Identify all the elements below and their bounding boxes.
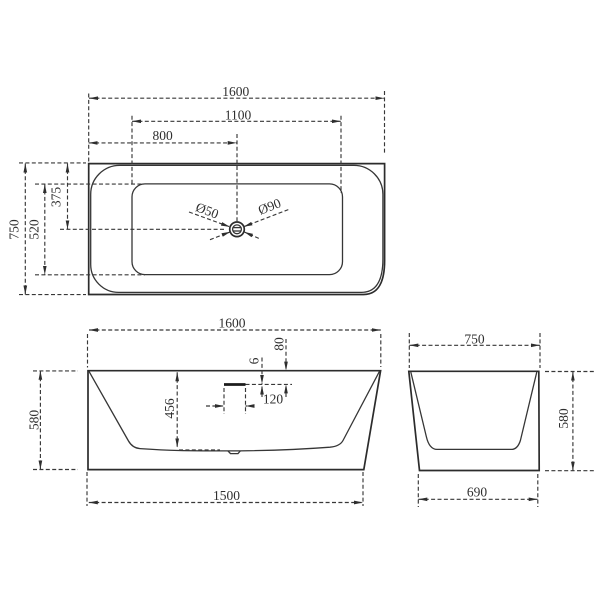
svg-text:1500: 1500: [213, 488, 240, 503]
svg-text:1600: 1600: [219, 316, 246, 331]
svg-text:456: 456: [162, 398, 177, 419]
svg-text:80: 80: [272, 337, 287, 351]
svg-text:520: 520: [27, 219, 42, 240]
svg-text:750: 750: [464, 332, 485, 347]
svg-text:580: 580: [27, 410, 42, 431]
svg-text:1100: 1100: [225, 108, 252, 123]
svg-text:580: 580: [556, 408, 571, 429]
svg-text:6: 6: [247, 357, 262, 364]
svg-text:750: 750: [7, 219, 22, 240]
svg-text:690: 690: [467, 485, 488, 500]
svg-text:120: 120: [263, 392, 284, 407]
svg-text:375: 375: [49, 187, 64, 208]
svg-text:800: 800: [152, 128, 173, 143]
svg-text:1600: 1600: [222, 84, 249, 99]
